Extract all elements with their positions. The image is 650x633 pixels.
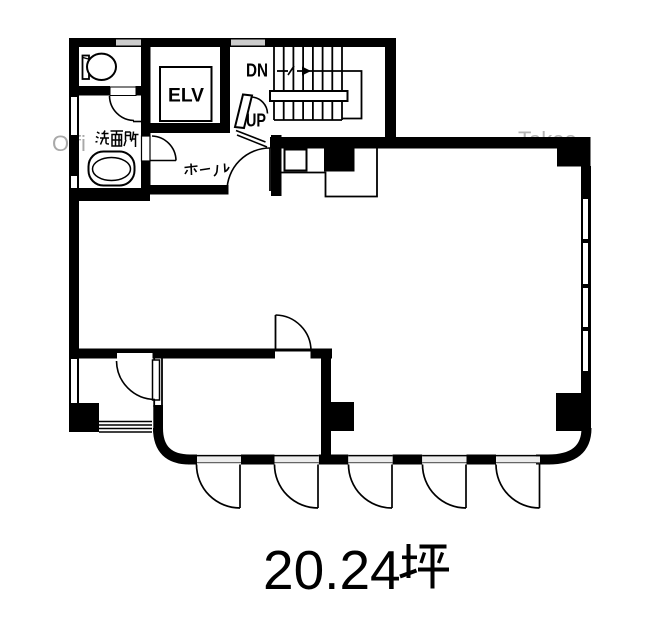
svg-text:UP: UP (246, 111, 266, 131)
svg-text:ELV: ELV (168, 86, 204, 107)
svg-text:20.24: 20.24 (263, 539, 401, 601)
svg-text:DN: DN (246, 61, 268, 81)
svg-text:Offi: Offi (52, 131, 86, 156)
